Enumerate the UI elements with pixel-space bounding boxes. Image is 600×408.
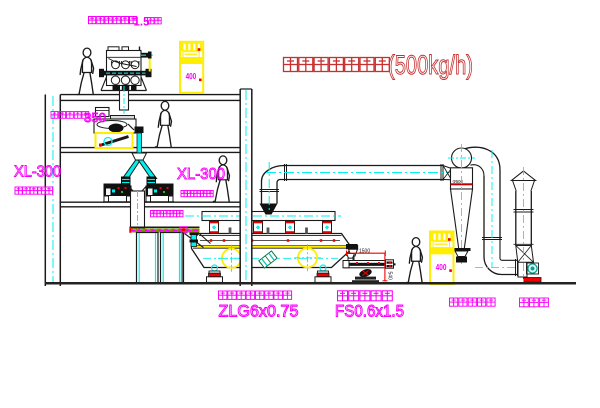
svg-text:XL-300: XL-300 bbox=[14, 164, 61, 181]
svg-text:400: 400 bbox=[436, 263, 447, 272]
svg-text:1500: 1500 bbox=[359, 248, 370, 254]
svg-text:XL-300: XL-300 bbox=[177, 166, 225, 183]
svg-text:(500kg/h): (500kg/h) bbox=[388, 50, 473, 80]
svg-text:350: 350 bbox=[84, 110, 106, 125]
svg-text:540: 540 bbox=[387, 272, 393, 281]
svg-text:ZLG6x0.75: ZLG6x0.75 bbox=[219, 303, 299, 321]
svg-text:400: 400 bbox=[186, 72, 197, 81]
svg-text:FS0.6x1.5: FS0.6x1.5 bbox=[335, 303, 404, 321]
